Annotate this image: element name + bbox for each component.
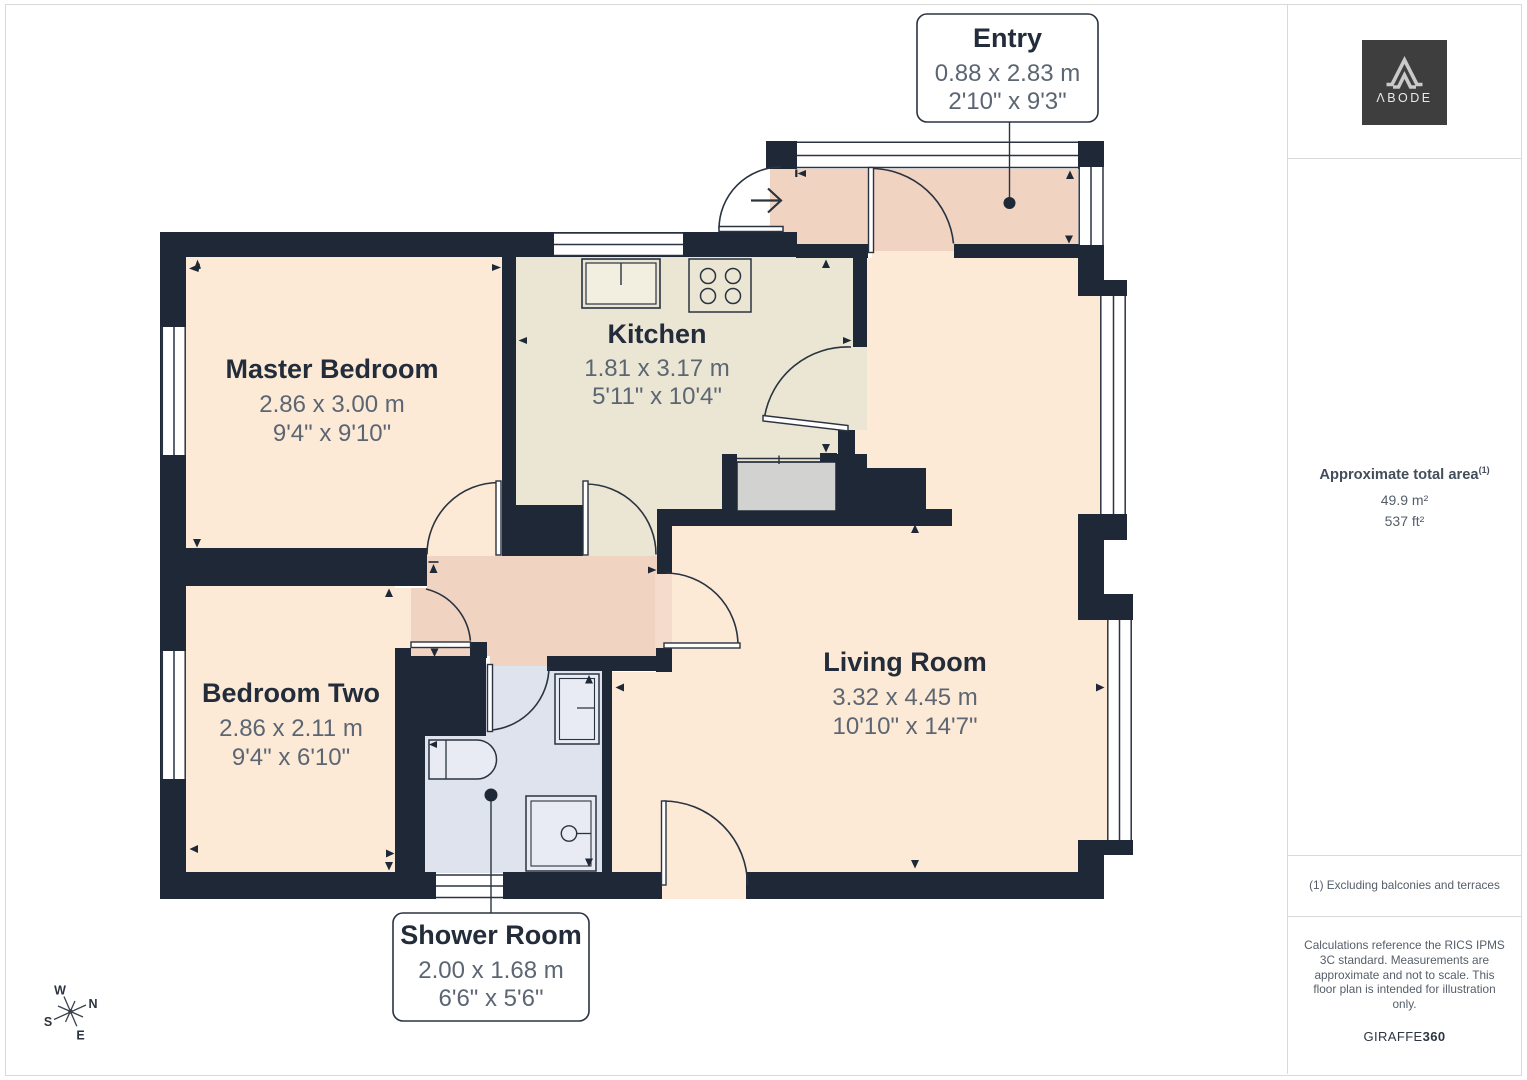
svg-text:0.88 x 2.83 m: 0.88 x 2.83 m xyxy=(935,60,1080,87)
svg-text:10'10" x 14'7": 10'10" x 14'7" xyxy=(833,713,978,740)
svg-text:S: S xyxy=(44,1015,52,1029)
svg-text:N: N xyxy=(88,997,97,1011)
svg-text:6'6" x 5'6": 6'6" x 5'6" xyxy=(439,985,544,1012)
svg-text:2.86 x 2.11 m: 2.86 x 2.11 m xyxy=(219,715,363,742)
svg-text:2.00 x 1.68 m: 2.00 x 1.68 m xyxy=(418,957,563,984)
svg-text:9'4" x 9'10": 9'4" x 9'10" xyxy=(273,420,391,447)
svg-text:Kitchen: Kitchen xyxy=(607,319,706,349)
svg-text:5'11" x 10'4": 5'11" x 10'4" xyxy=(592,383,722,410)
svg-text:Shower Room: Shower Room xyxy=(400,920,582,950)
svg-text:W: W xyxy=(54,984,66,998)
svg-text:Living Room: Living Room xyxy=(823,647,987,677)
svg-text:Entry: Entry xyxy=(973,23,1042,53)
svg-text:E: E xyxy=(76,1029,84,1043)
svg-text:2.86 x 3.00 m: 2.86 x 3.00 m xyxy=(259,391,404,418)
svg-text:2'10" x 9'3": 2'10" x 9'3" xyxy=(948,88,1066,115)
svg-text:9'4" x 6'10": 9'4" x 6'10" xyxy=(232,744,350,771)
svg-text:Master Bedroom: Master Bedroom xyxy=(225,354,438,384)
svg-text:1.81 x 3.17 m: 1.81 x 3.17 m xyxy=(584,355,729,382)
svg-text:3.32 x 4.45 m: 3.32 x 4.45 m xyxy=(832,684,977,711)
svg-text:ΛBODE: ΛBODE xyxy=(1376,91,1432,105)
svg-text:Bedroom Two: Bedroom Two xyxy=(202,678,380,708)
